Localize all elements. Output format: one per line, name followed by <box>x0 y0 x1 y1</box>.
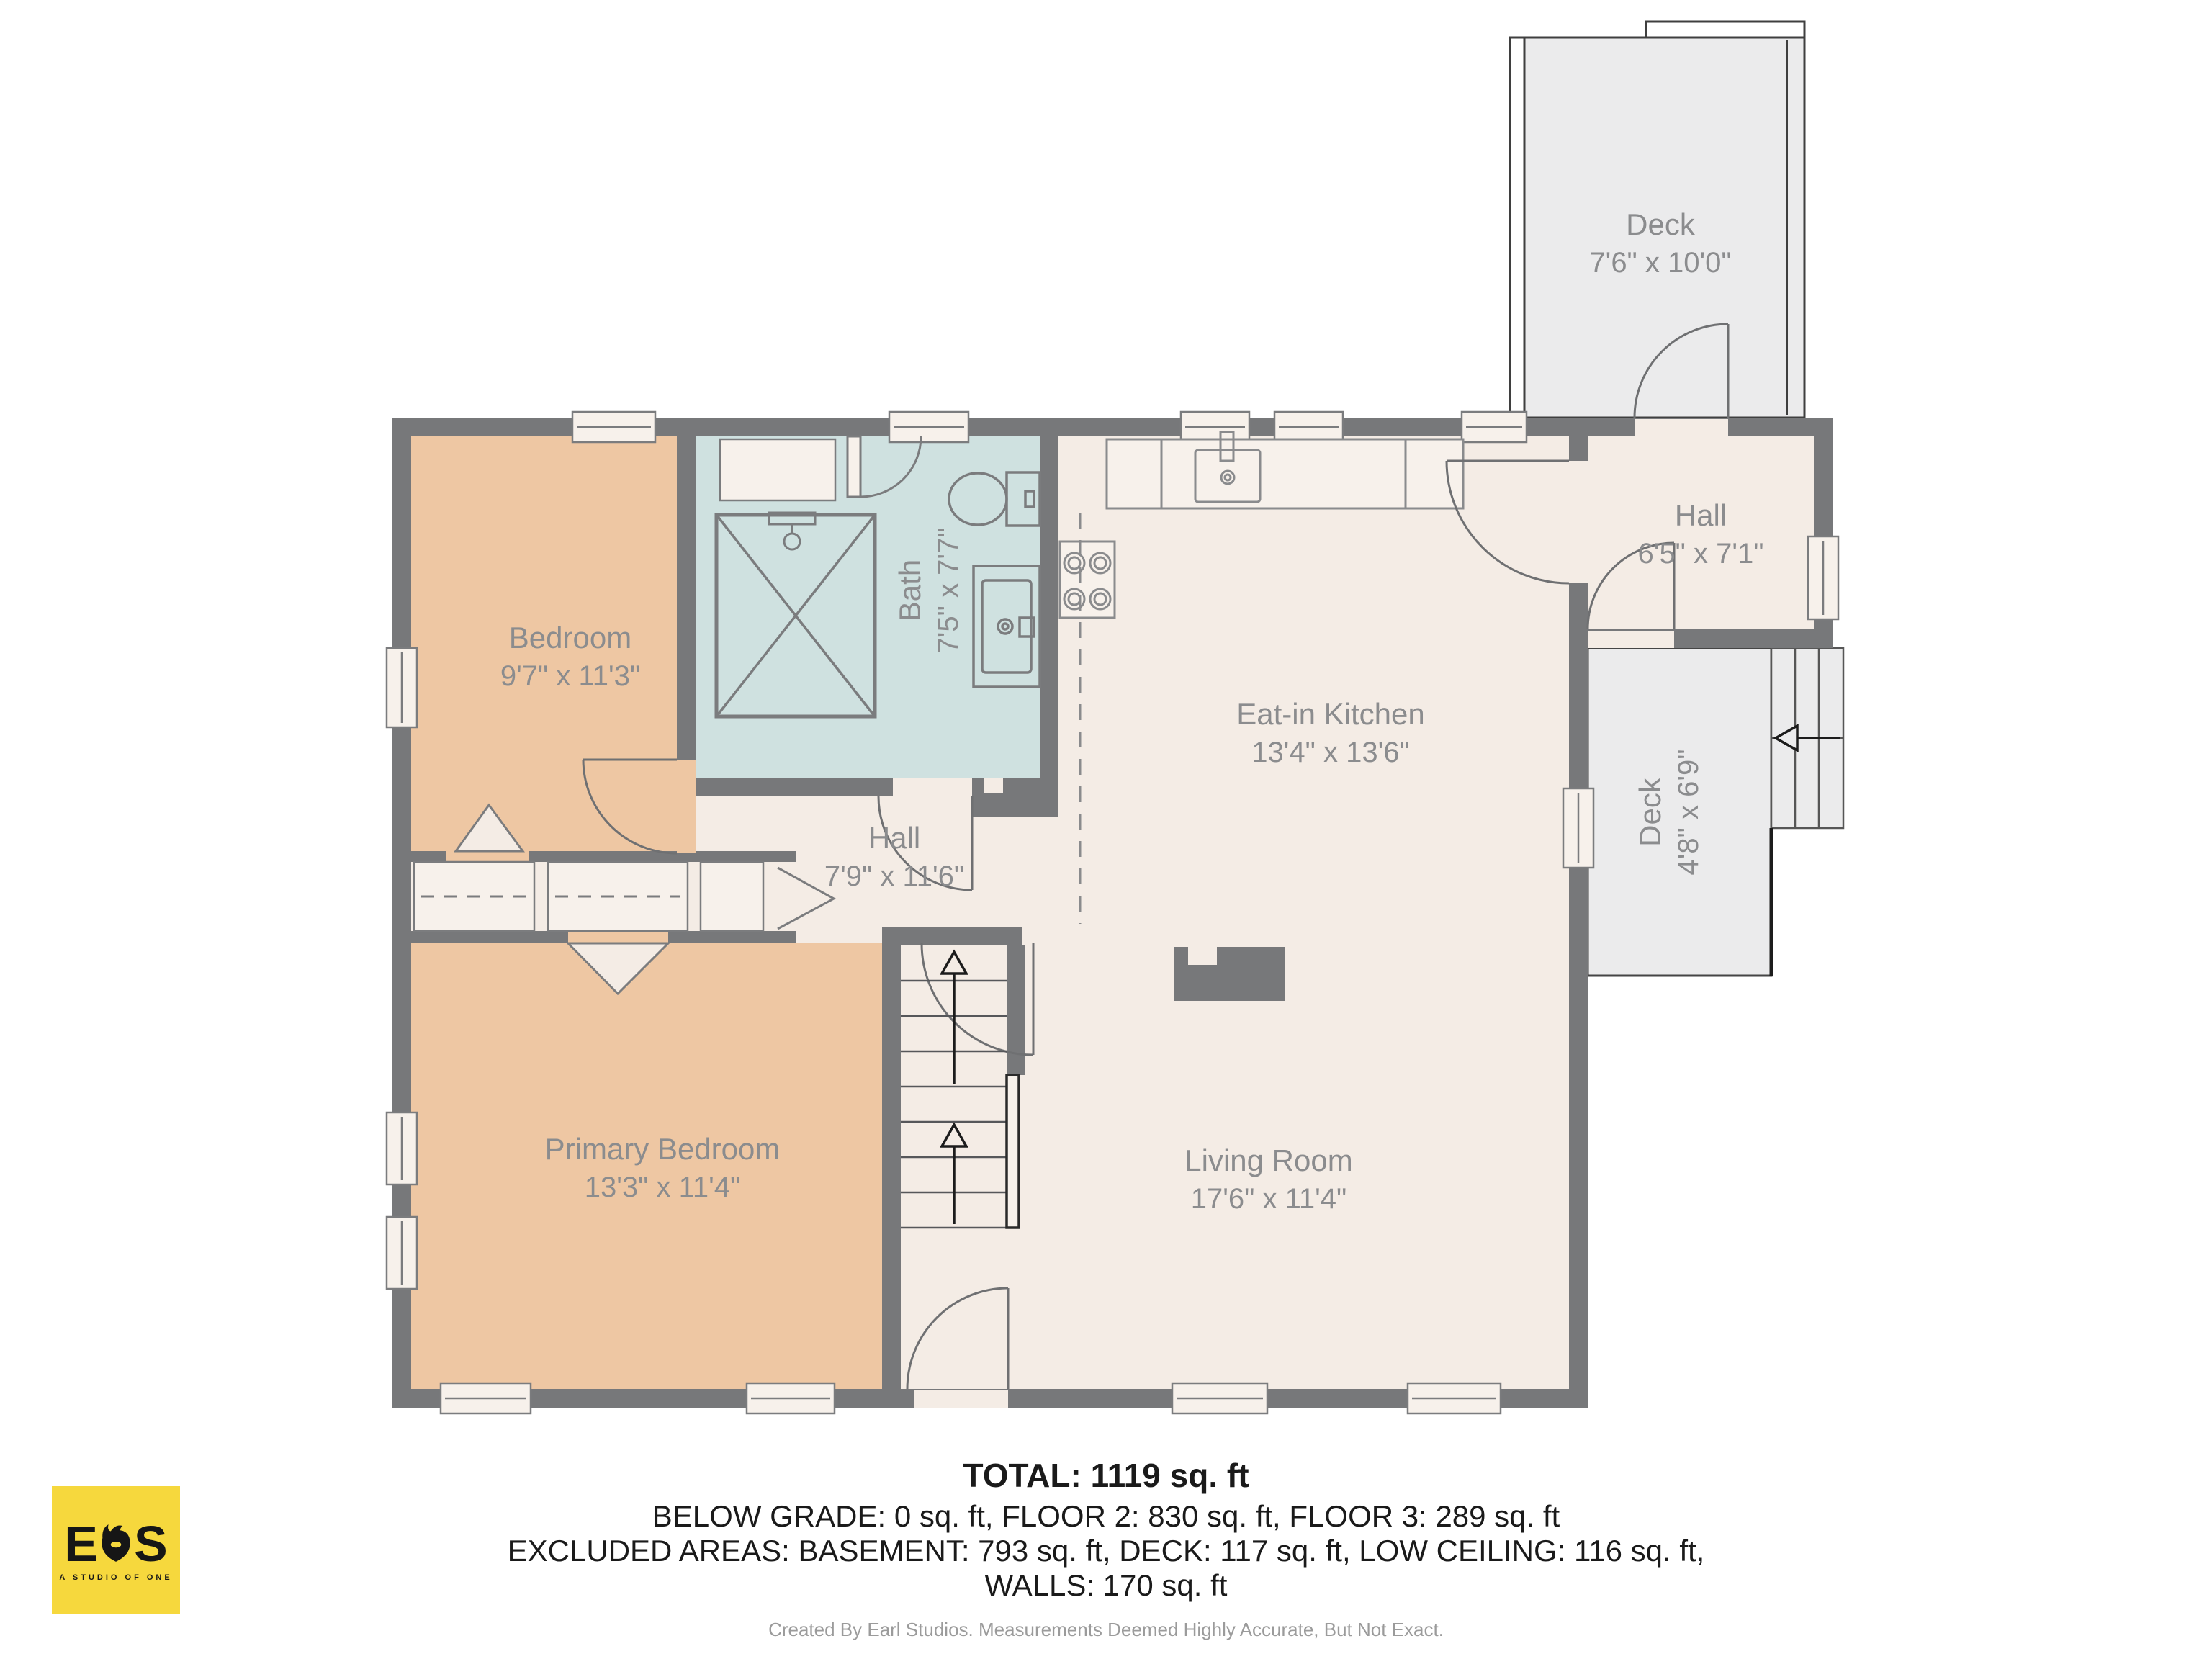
bathroom-closet <box>720 439 835 500</box>
room-dims: 7'5" x 7'7" <box>930 528 968 654</box>
summary-below-grade: BELOW GRADE: 0 sq. ft, FLOOR 2: 830 sq. … <box>0 1499 2212 1534</box>
earl-studios-logo: E S A STUDIO OF ONE <box>52 1486 180 1614</box>
room-dims: 7'6" x 10'0" <box>1589 244 1731 282</box>
room-name: Deck <box>1630 750 1670 876</box>
room-dims: 4'8" x 6'9" <box>1670 750 1708 876</box>
label-hall-center: Hall 7'9" x 11'6" <box>824 818 964 896</box>
window-primary-left-2 <box>387 1217 417 1289</box>
deck-rail-step <box>1646 22 1804 37</box>
room-dims: 9'7" x 11'3" <box>500 657 640 696</box>
room-name: Eat-in Kitchen <box>1236 694 1424 734</box>
window-kitchen-top-2 <box>1274 412 1343 442</box>
kitchen-counter <box>1107 439 1463 508</box>
label-bedroom: Bedroom 9'7" x 11'3" <box>500 618 640 696</box>
window-bedroom-top <box>572 412 655 442</box>
logo-letters: E S <box>64 1519 167 1569</box>
disclaimer-text: Created By Earl Studios. Measurements De… <box>0 1619 2212 1641</box>
window-hall-right <box>1808 536 1838 619</box>
window-living-bottom-2 <box>1408 1383 1501 1413</box>
room-name: Bedroom <box>500 618 640 657</box>
deck-rail-left <box>1510 37 1524 418</box>
floorplan-page: { "rooms": { "deck_top": {"name": "Deck"… <box>0 0 2212 1659</box>
closet-b <box>548 862 688 931</box>
window-kitchen-deck-door <box>1563 788 1593 868</box>
wall-bath-bottom <box>696 778 893 796</box>
window-primary-bottom-2 <box>747 1383 835 1413</box>
stove-icon <box>1060 541 1115 618</box>
beard-icon <box>99 1521 132 1567</box>
label-deck-top: Deck 7'6" x 10'0" <box>1589 204 1731 282</box>
logo-tagline: A STUDIO OF ONE <box>59 1573 172 1582</box>
floorplan-drawing <box>0 0 2212 1659</box>
label-hall-right: Hall 6'5" x 7'1" <box>1638 495 1764 573</box>
room-dims: 17'6" x 11'4" <box>1184 1180 1352 1218</box>
window-living-bottom-1 <box>1172 1383 1267 1413</box>
wall-primary-right <box>882 943 901 1389</box>
wall-stairs-top <box>882 927 1022 945</box>
window-kitchen-top-1 <box>1181 412 1249 442</box>
stair-railing <box>1007 1075 1019 1228</box>
window-bath-top <box>889 412 968 442</box>
logo-letter-s: S <box>134 1519 168 1569</box>
room-dims: 13'3" x 11'4" <box>545 1169 781 1207</box>
room-dims: 6'5" x 7'1" <box>1638 535 1764 573</box>
deck-right <box>1588 648 1843 976</box>
logo-letter-e: E <box>64 1519 98 1569</box>
label-living-room: Living Room 17'6" x 11'4" <box>1184 1141 1352 1218</box>
room-name: Deck <box>1589 204 1731 244</box>
label-primary-bedroom: Primary Bedroom 13'3" x 11'4" <box>545 1129 781 1207</box>
window-kitchen-top-3 <box>1462 412 1527 442</box>
window-primary-left-1 <box>387 1112 417 1184</box>
label-kitchen: Eat-in Kitchen 13'4" x 13'6" <box>1236 694 1424 772</box>
window-bedroom-left <box>387 648 417 727</box>
wall-bath-right <box>1040 436 1058 817</box>
room-name: Living Room <box>1184 1141 1352 1180</box>
label-deck-right: Deck 4'8" x 6'9" <box>1630 750 1708 876</box>
room-name: Primary Bedroom <box>545 1129 781 1169</box>
window-primary-bottom-1 <box>441 1383 531 1413</box>
closet-c <box>701 862 763 931</box>
summary-excluded-areas: EXCLUDED AREAS: BASEMENT: 793 sq. ft, DE… <box>0 1534 2212 1568</box>
summary-walls: WALLS: 170 sq. ft <box>0 1568 2212 1603</box>
wall-stairs-right <box>1007 945 1025 1075</box>
room-name: Hall <box>1638 495 1764 535</box>
summary-total: TOTAL: 1119 sq. ft <box>0 1456 2212 1495</box>
room-dims: 13'4" x 13'6" <box>1236 734 1424 772</box>
room-name: Hall <box>824 818 964 858</box>
deck-stairs <box>1771 648 1843 828</box>
shower-icon <box>716 513 875 716</box>
room-name: Bath <box>890 528 930 654</box>
room-dims: 7'9" x 11'6" <box>824 858 964 896</box>
label-bath: Bath 7'5" x 7'7" <box>890 528 968 654</box>
